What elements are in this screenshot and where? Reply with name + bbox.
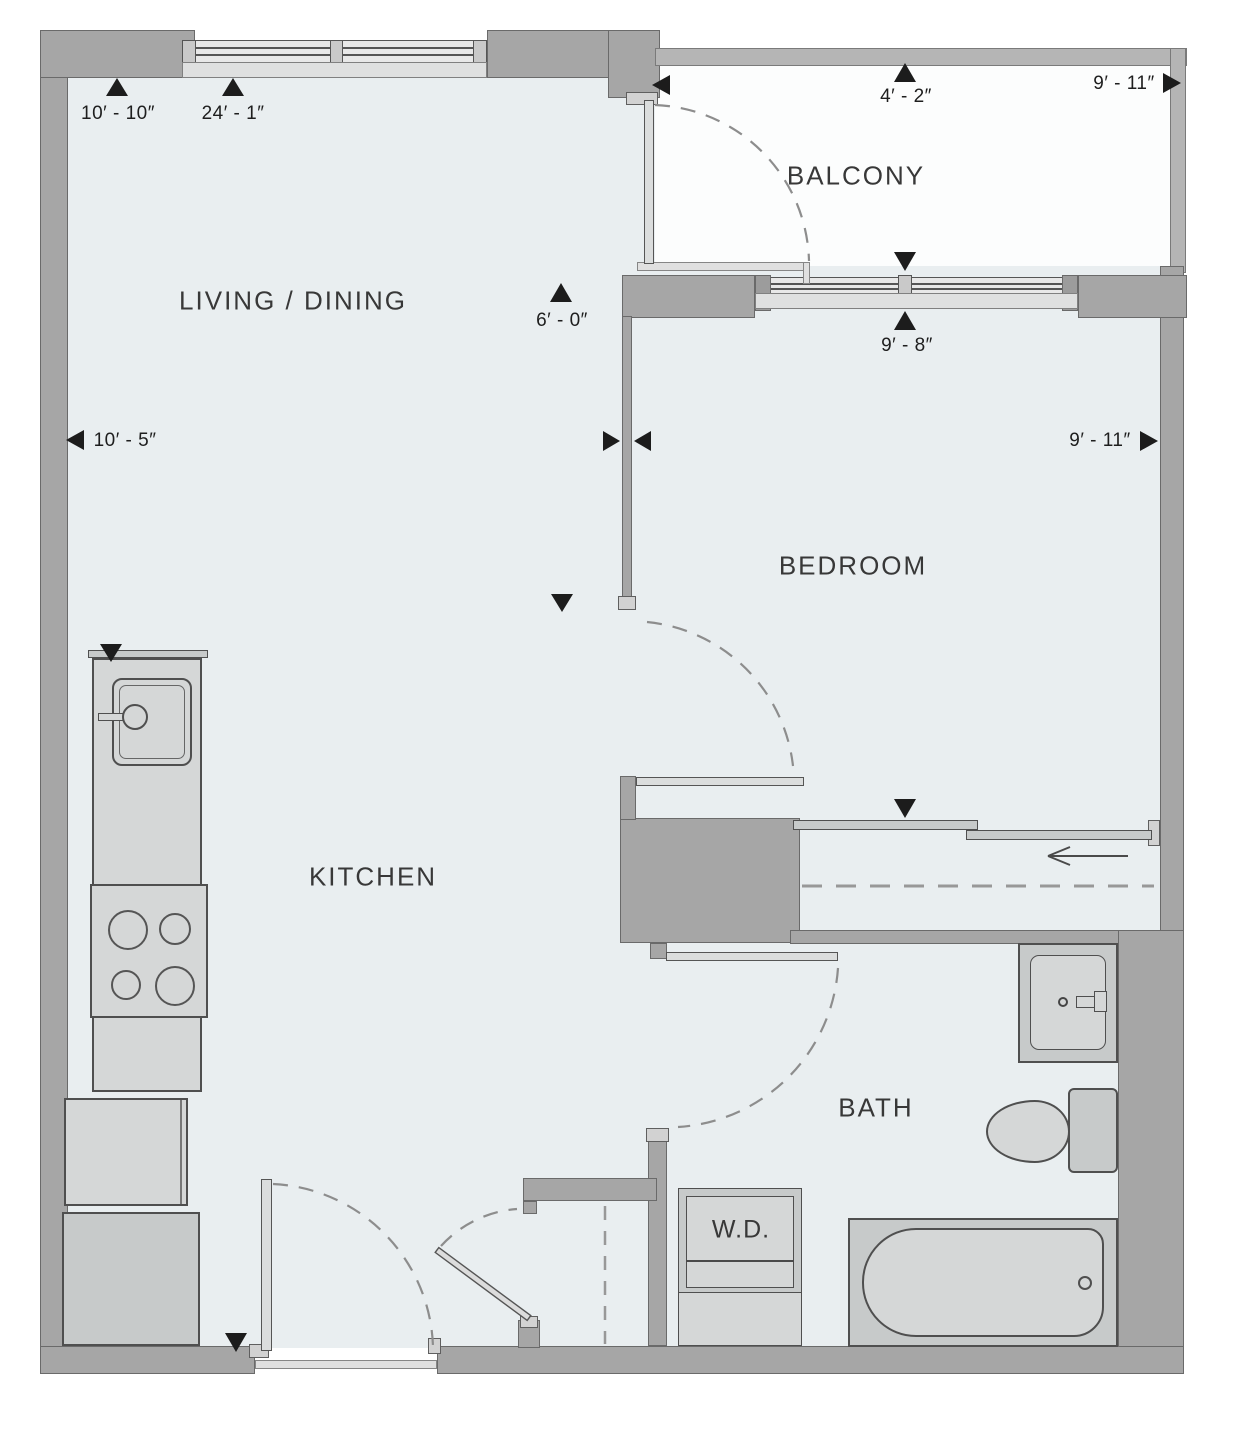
room-label-living: LIVING / DINING (179, 286, 407, 317)
wall-bath-right (1118, 930, 1184, 1374)
wall-bottom-left (40, 1346, 255, 1374)
dim-opening-width: 6′ - 0″ (536, 310, 588, 332)
closet-slider-back (966, 830, 1152, 840)
room-label-wd: W.D. (712, 1216, 770, 1245)
wall-vestibule-top (523, 1178, 657, 1201)
closet-slider-front (793, 820, 978, 830)
dim-balcony-width: 9′ - 11″ (1093, 73, 1154, 95)
room-label-bath: BATH (838, 1093, 913, 1124)
toilet-tank (1068, 1088, 1118, 1173)
washer-dryer-divider (686, 1260, 794, 1262)
jamb-entry-right (428, 1338, 441, 1354)
bathtub (862, 1228, 1104, 1337)
jamb-vestibule-door (520, 1316, 538, 1328)
dishwasher (64, 1098, 188, 1206)
wall-partition-living-bedroom (622, 316, 632, 598)
wall-bedroom-top-right (1078, 275, 1187, 318)
wall-bedroom-door-post (620, 776, 636, 820)
wall-bedroom-top-left (622, 275, 755, 318)
room-label-kitchen: KITCHEN (309, 862, 437, 893)
wall-closet-bottom (790, 930, 1160, 944)
dim-bedroom-width: 9′ - 11″ (1069, 430, 1130, 452)
wall-bottom-right (437, 1346, 1184, 1374)
jamb-partition-end (618, 596, 636, 610)
kitchen-faucet (122, 704, 148, 730)
living-window-frame-right (473, 40, 487, 63)
wall-balcony-door-post (608, 30, 660, 98)
refrigerator (62, 1212, 200, 1346)
burner-large-2 (155, 966, 195, 1006)
entry-threshold (255, 1360, 437, 1369)
wall-vestibule-jamb (523, 1201, 537, 1214)
vanity-faucet-base (1094, 991, 1107, 1012)
balcony-door-leaf (644, 100, 654, 264)
wall-top-left (40, 30, 195, 78)
bedroom-door-leaf (636, 777, 804, 786)
burner-small-1 (159, 913, 191, 945)
bathtub-drain (1078, 1276, 1092, 1290)
floor-plan: LIVING / DINING BALCONY BEDROOM KITCHEN … (0, 0, 1240, 1440)
living-window-mullion (330, 40, 343, 63)
balcony-rail-top (655, 48, 1187, 66)
kitchen-counter-edge (88, 650, 208, 658)
balcony-rail-right (1170, 48, 1186, 273)
entry-door-leaf (261, 1179, 272, 1351)
washer-dryer-base (678, 1292, 802, 1346)
living-window-frame-left (182, 40, 196, 63)
bedroom-window-sill (755, 293, 1078, 309)
wall-bath-door-post (650, 943, 667, 959)
burner-small-2 (111, 970, 141, 1000)
room-label-balcony: BALCONY (787, 161, 925, 192)
balcony-door-stop (803, 262, 810, 284)
living-window-sill (182, 62, 487, 78)
stove (90, 884, 208, 1018)
dim-balcony-depth: 4′ - 2″ (880, 86, 932, 108)
dim-unit-depth: 24′ - 1″ (202, 103, 265, 125)
dim-bedroom-depth: 9′ - 8″ (881, 335, 933, 357)
jamb-bath-wall (646, 1128, 669, 1142)
room-label-bedroom: BEDROOM (779, 551, 927, 582)
wall-top-right (487, 30, 612, 78)
balcony-door-threshold (637, 262, 810, 271)
dim-living-depth: 10′ - 10″ (81, 103, 155, 125)
vanity-faucet (1058, 997, 1068, 1007)
dim-living-width: 10′ - 5″ (94, 430, 157, 452)
burner-large-1 (108, 910, 148, 950)
bath-door-leaf (666, 952, 838, 961)
wall-bath-west (648, 1128, 667, 1346)
wall-hall-block (620, 818, 800, 943)
